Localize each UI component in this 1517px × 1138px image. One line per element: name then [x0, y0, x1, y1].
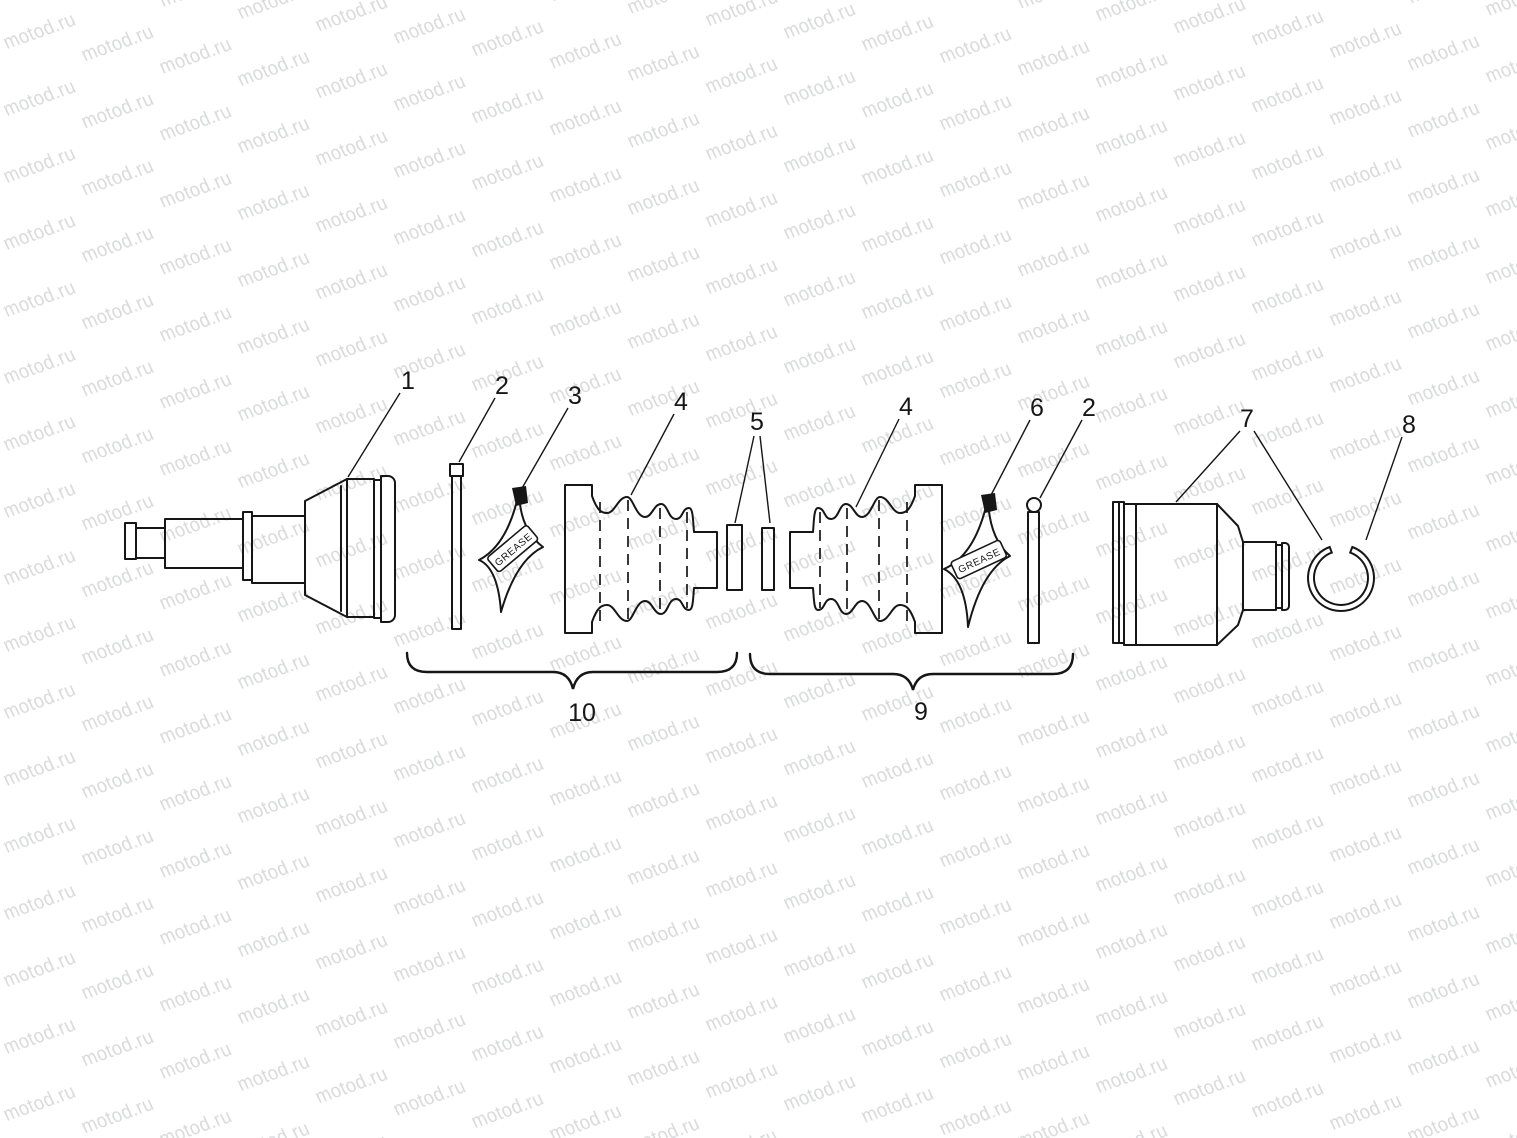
exploded-parts-diagram-page: motod.ru	[0, 0, 1517, 1138]
callout-5: 5	[750, 408, 764, 436]
callout-3: 3	[568, 382, 582, 410]
callout-10: 10	[568, 699, 596, 727]
cv-axle-exploded-diagram: motod.ru	[0, 0, 1517, 1138]
callout-9: 9	[914, 698, 928, 726]
callout-2b: 2	[1082, 394, 1096, 422]
callout-8: 8	[1402, 411, 1416, 439]
callout-4a: 4	[674, 388, 688, 416]
callout-2a: 2	[495, 372, 509, 400]
callout-6: 6	[1030, 394, 1044, 422]
callout-4b: 4	[899, 393, 913, 421]
callout-7: 7	[1240, 405, 1254, 433]
callout-1: 1	[401, 367, 415, 395]
